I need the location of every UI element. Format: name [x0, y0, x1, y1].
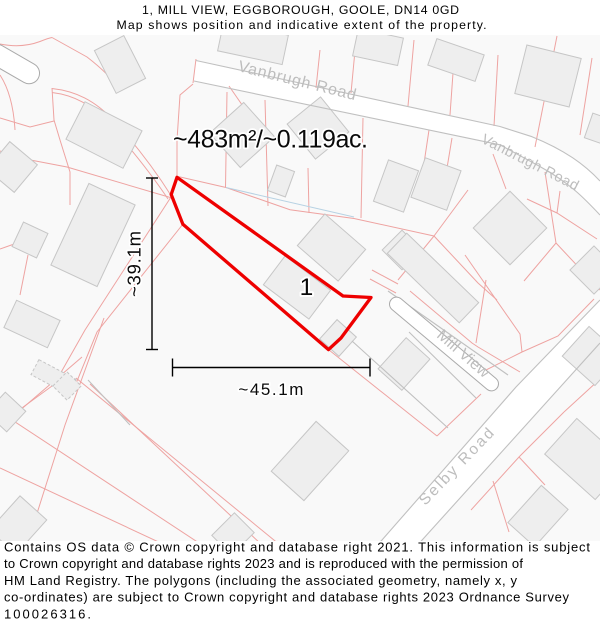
svg-text:HM Land Registry. The polygons: HM Land Registry. The polygons (includin…	[4, 573, 518, 588]
svg-text:100026316.: 100026316.	[4, 606, 91, 621]
svg-text:Contains OS data © Crown copyr: Contains OS data © Crown copyright and d…	[4, 540, 590, 555]
svg-text:Map shows position and indicat: Map shows position and indicative extent…	[117, 18, 487, 32]
svg-text:co-ordinates) are subject to C: co-ordinates) are subject to Crown copyr…	[4, 590, 570, 605]
svg-text:~483m²/~0.119ac.: ~483m²/~0.119ac.	[173, 126, 368, 154]
svg-text:to Crown copyright and databas: to Crown copyright and database rights 2…	[4, 556, 523, 571]
svg-text:1: 1	[300, 274, 314, 301]
svg-text:~39.1m: ~39.1m	[124, 231, 145, 297]
svg-text:1, MILL VIEW, EGGBOROUGH, GOOL: 1, MILL VIEW, EGGBOROUGH, GOOLE, DN14 0G…	[142, 3, 459, 17]
